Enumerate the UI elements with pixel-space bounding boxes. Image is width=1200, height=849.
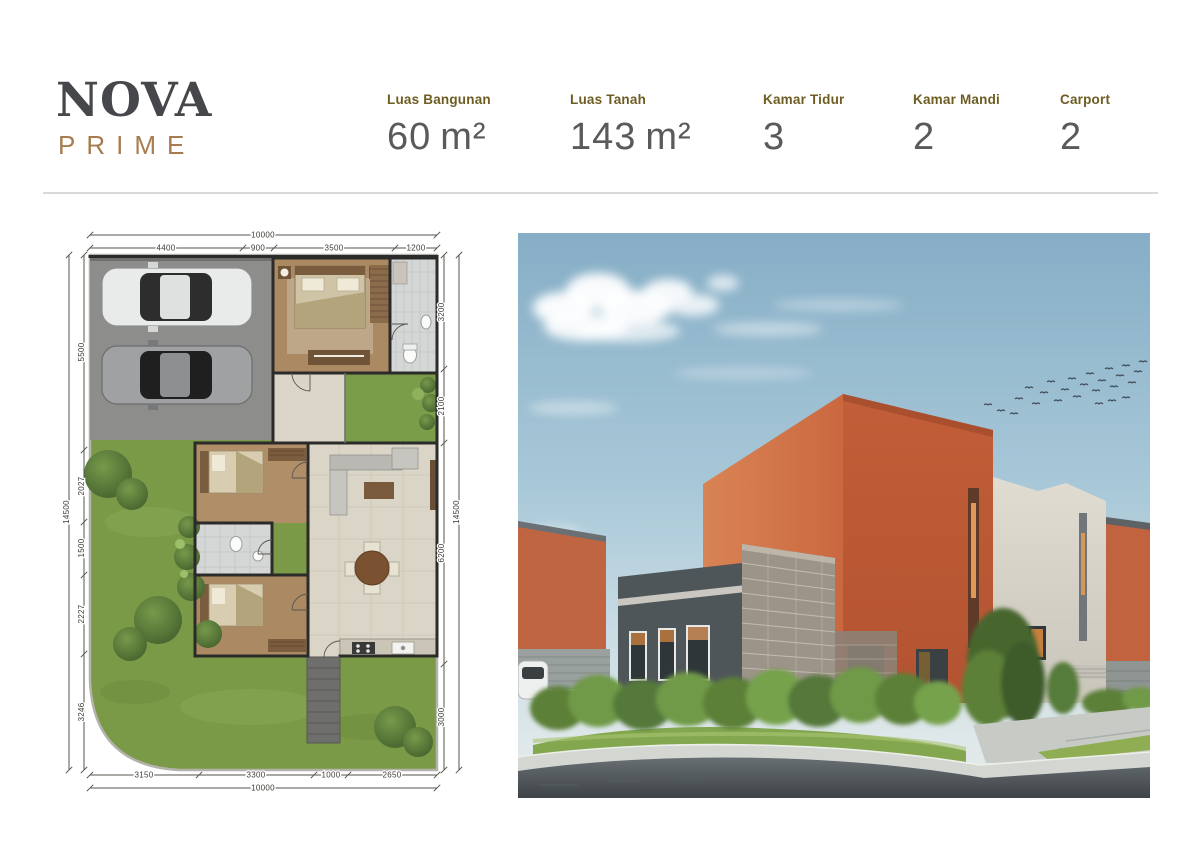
dim-bottom-4: 2650: [383, 771, 402, 780]
dim-left-3: 1500: [77, 538, 86, 557]
dim-left-5: 3246: [77, 702, 86, 721]
bedroom-2: [195, 443, 308, 523]
dim-bottom-total: 10000: [251, 784, 275, 793]
dim-bottom-3: 1000: [322, 771, 341, 780]
dim-top-2: 900: [251, 244, 265, 253]
dim-left-2: 2027: [77, 476, 86, 495]
living-dining-room: [307, 443, 437, 657]
brand-logo: NOVA PRIME: [56, 76, 212, 161]
spec-value: 60m²: [387, 116, 491, 159]
spec-value: 3: [763, 116, 844, 159]
spec-kamar-mandi: Kamar Mandi 2: [913, 92, 1000, 159]
spec-value: 2: [1060, 116, 1110, 159]
dim-top-3: 3500: [325, 244, 344, 253]
spec-kamar-tidur: Kamar Tidur 3: [763, 92, 844, 159]
spec-unit: m²: [440, 116, 486, 158]
dim-top-total: 10000: [251, 231, 275, 240]
car-top-view-white: [102, 262, 252, 332]
master-bedroom: [273, 258, 390, 373]
spec-label: Kamar Mandi: [913, 92, 1000, 107]
dim-right-1: 3200: [437, 302, 446, 321]
carport-area: [90, 255, 293, 440]
bathroom-1: [390, 258, 437, 373]
floor-plan: 10000 4400 900 3500 1200 3150 3300 1000 …: [40, 222, 480, 807]
spec-label: Kamar Tidur: [763, 92, 844, 107]
dim-left-4: 2227: [77, 604, 86, 623]
dim-bottom-1: 3150: [135, 771, 154, 780]
spec-luas-tanah: Luas Tanah 143m²: [570, 92, 692, 159]
brand-name: NOVA: [56, 76, 212, 126]
dim-top-4: 1200: [407, 244, 426, 253]
dim-right-3: 6200: [437, 543, 446, 562]
exterior-render-photo: [518, 233, 1150, 798]
brand-subname: PRIME: [58, 130, 212, 161]
dim-bottom-2: 3300: [247, 771, 266, 780]
exterior-render: [518, 233, 1150, 798]
neighbour-house-right: [1106, 517, 1150, 703]
spec-label: Carport: [1060, 92, 1110, 107]
dim-left-total: 14500: [62, 500, 71, 524]
stone-windows: [629, 625, 710, 681]
spec-unit: m²: [645, 116, 691, 158]
dim-right-total: 14500: [452, 500, 461, 524]
spec-label: Luas Tanah: [570, 92, 692, 107]
courtyard-garden: [345, 377, 440, 443]
bathroom-2: [195, 523, 272, 575]
dim-left-1: 5500: [77, 342, 86, 361]
floor-plan-drawing: 10000 4400 900 3500 1200 3150 3300 1000 …: [40, 222, 480, 807]
dim-right-4: 3000: [437, 707, 446, 726]
header-divider: [43, 192, 1158, 194]
dim-right-2: 2100: [437, 396, 446, 415]
brochure-page: { "header": { "logo": { "name": "NOVA", …: [0, 0, 1200, 849]
spec-label: Luas Bangunan: [387, 92, 491, 107]
dim-top-1: 4400: [157, 244, 176, 253]
spec-value: 2: [913, 116, 1000, 159]
kitchen-counter: [340, 639, 437, 657]
spec-value: 143m²: [570, 116, 692, 159]
car-top-view-dark: [102, 340, 252, 410]
neighbour-house-left: [518, 521, 610, 699]
spec-luas-bangunan: Luas Bangunan 60m²: [387, 92, 491, 159]
spec-carport: Carport 2: [1060, 92, 1110, 159]
garden-steps: [307, 657, 340, 743]
foyer-floor: [273, 373, 345, 443]
